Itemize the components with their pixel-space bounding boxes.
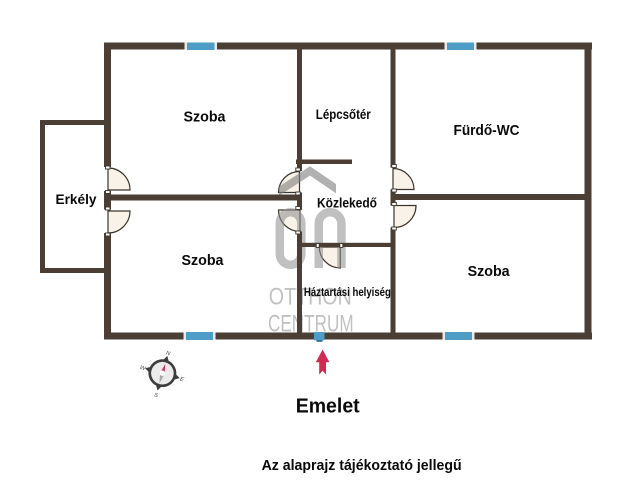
svg-text:Háztartási helyiség: Háztartási helyiség	[304, 287, 391, 299]
svg-text:Emelet: Emelet	[296, 396, 360, 418]
svg-text:Szoba: Szoba	[184, 109, 227, 126]
svg-text:Erkély: Erkély	[56, 191, 97, 207]
svg-text:Szoba: Szoba	[468, 263, 511, 280]
svg-text:Közlekedő: Közlekedő	[317, 195, 377, 211]
svg-text:Lépcsőtér: Lépcsőtér	[316, 106, 371, 122]
svg-text:Fürdő-WC: Fürdő-WC	[454, 122, 520, 139]
svg-text:Az alaprajz tájékoztató jelleg: Az alaprajz tájékoztató jellegű	[262, 457, 462, 474]
svg-text:Szoba: Szoba	[182, 252, 225, 269]
